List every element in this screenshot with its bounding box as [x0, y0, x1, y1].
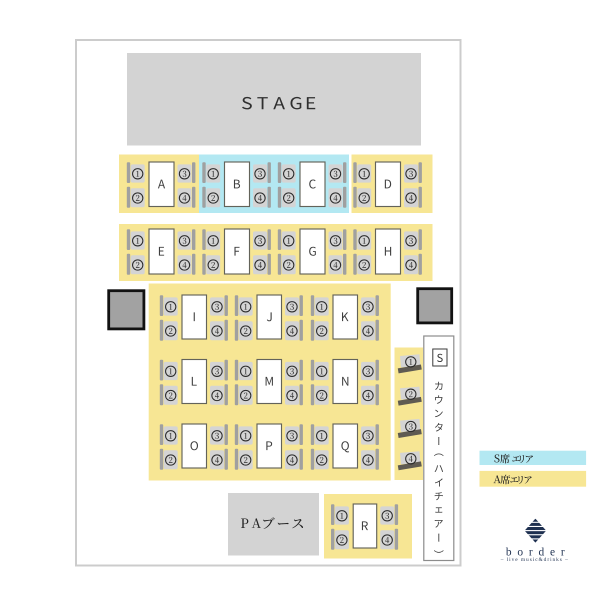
svg-text:– live music&drinks –: – live music&drinks – [500, 557, 569, 563]
